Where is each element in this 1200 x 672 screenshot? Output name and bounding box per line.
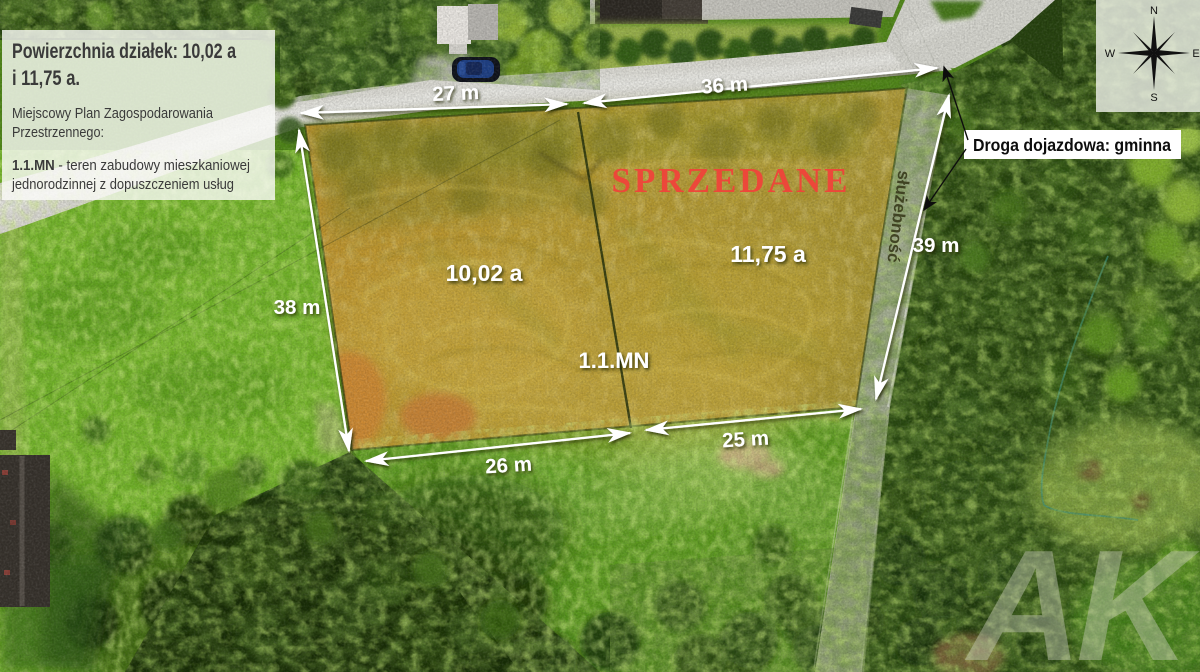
svg-text:11,75 a: 11,75 a — [730, 241, 806, 267]
svg-text:i 11,75 a.: i 11,75 a. — [12, 67, 80, 90]
svg-text:1.1.MN: 1.1.MN — [579, 348, 650, 373]
svg-text:S: S — [1150, 92, 1157, 104]
svg-text:SPRZEDANE: SPRZEDANE — [612, 161, 851, 200]
svg-text:36 m: 36 m — [700, 72, 748, 98]
svg-text:39 m: 39 m — [913, 234, 960, 257]
svg-text:E: E — [1192, 48, 1199, 60]
svg-text:N: N — [1150, 5, 1158, 17]
svg-text:jednorodzinnej z dopuszczeniem: jednorodzinnej z dopuszczeniem usług — [11, 176, 234, 193]
svg-text:Powierzchnia działek: 10,02 a: Powierzchnia działek: 10,02 a — [12, 40, 236, 63]
svg-text:10,02 a: 10,02 a — [446, 260, 523, 286]
svg-text:25 m: 25 m — [722, 427, 770, 453]
svg-text:Przestrzennego:: Przestrzennego: — [12, 124, 104, 141]
svg-text:Miejscowy Plan Zagospodarowani: Miejscowy Plan Zagospodarowania — [12, 105, 214, 122]
svg-text:27 m: 27 m — [432, 81, 480, 106]
svg-text:Droga dojazdowa: gminna: Droga dojazdowa: gminna — [973, 135, 1171, 155]
svg-text:AK: AK — [964, 518, 1200, 672]
svg-text:1.1.MN - teren zabudowy mieszk: 1.1.MN - teren zabudowy mieszkaniowej — [12, 157, 250, 174]
svg-text:38 m: 38 m — [274, 296, 321, 319]
svg-text:W: W — [1105, 48, 1116, 60]
svg-text:26 m: 26 m — [485, 453, 533, 479]
